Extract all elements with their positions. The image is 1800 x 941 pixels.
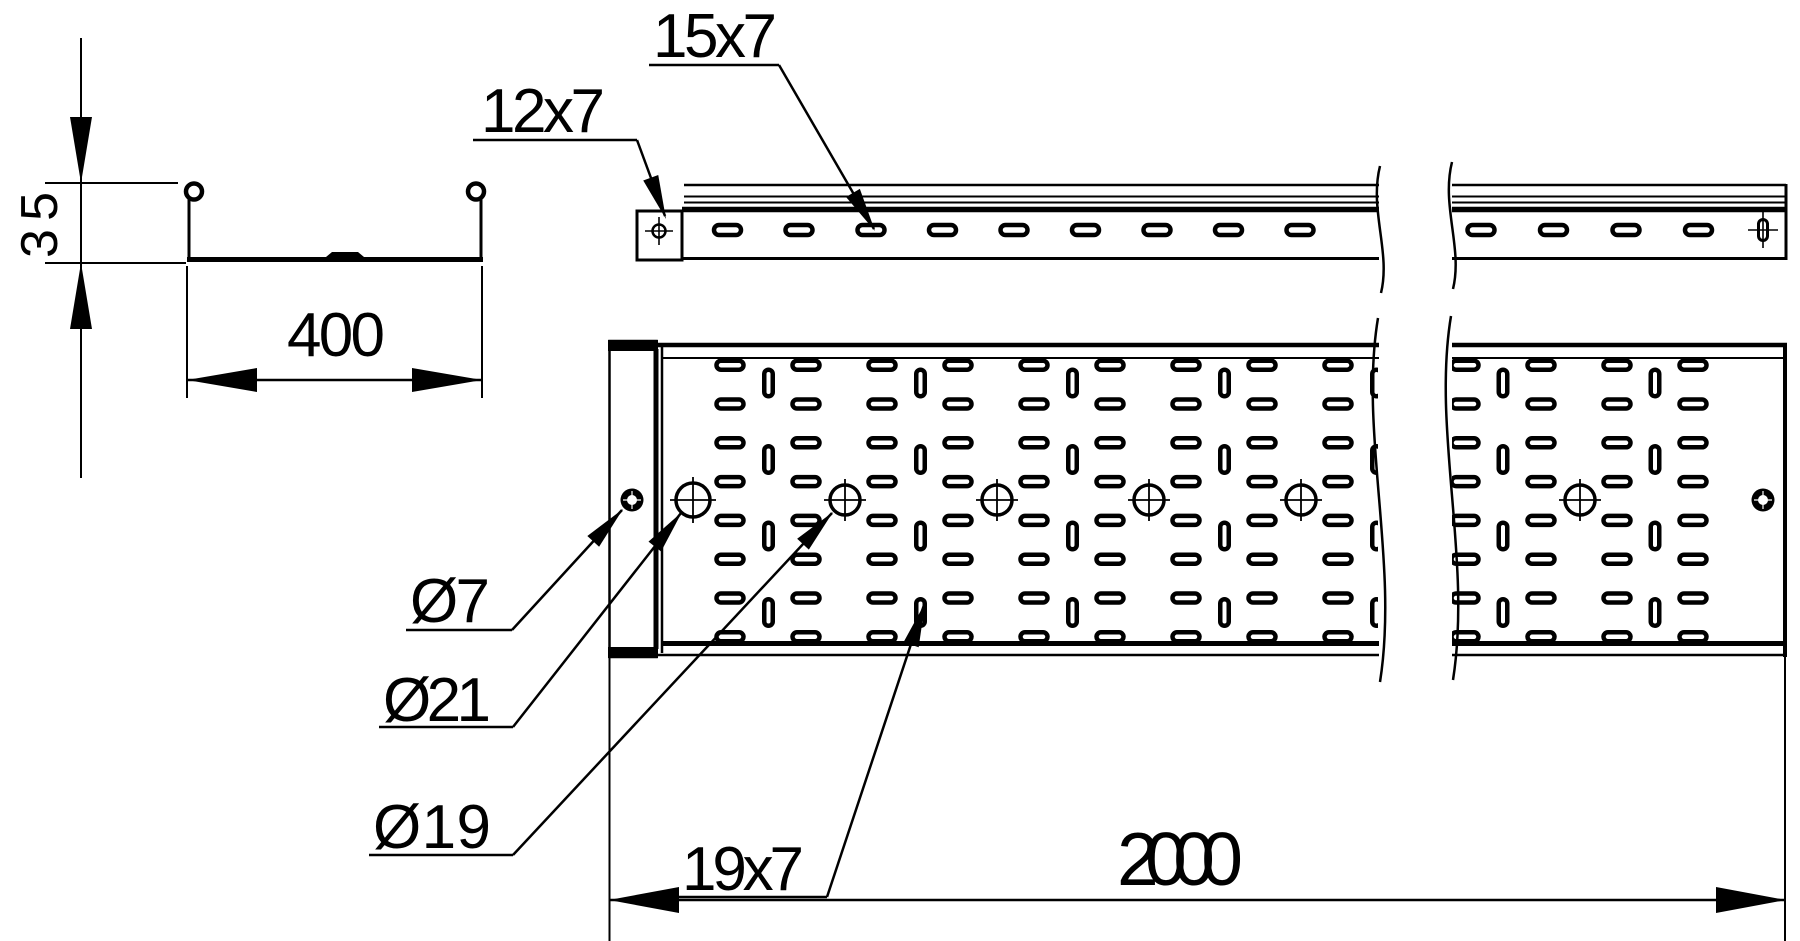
slot-hole: [1452, 361, 1479, 370]
slot-hole: [1680, 594, 1707, 603]
slot-hole: [1173, 361, 1200, 370]
slot-hole: [945, 400, 972, 409]
slot-hole: [1651, 446, 1660, 473]
slot-hole: [1372, 599, 1381, 626]
slot-hole: [869, 400, 896, 409]
slot-hole: [1499, 370, 1508, 397]
slot-hole: [1651, 523, 1660, 550]
arrowhead: [1716, 887, 1786, 913]
slot-hole: [786, 225, 813, 235]
slot-hole: [1097, 400, 1124, 409]
slot-hole: [1604, 361, 1631, 370]
slot-hole: [1680, 400, 1707, 409]
slot-hole: [1097, 594, 1124, 603]
slot-hole: [1468, 225, 1495, 235]
slot-hole: [1604, 555, 1631, 564]
slot-hole: [1680, 361, 1707, 370]
slot-hole: [1528, 632, 1555, 641]
slot-hole: [1097, 477, 1124, 486]
slot-hole: [793, 438, 820, 447]
slot-hole: [1173, 400, 1200, 409]
slot-hole: [1249, 477, 1276, 486]
slot-hole: [1372, 523, 1381, 550]
slot-hole: [1604, 477, 1631, 486]
slot-hole: [945, 594, 972, 603]
plate-top-cap: [608, 340, 658, 351]
slot-hole: [1097, 361, 1124, 370]
break-line: [1449, 162, 1456, 289]
dim-35-text: 35: [11, 192, 69, 258]
slot-hole: [1287, 225, 1314, 235]
slot-hole: [1325, 477, 1352, 486]
slot-hole: [1372, 370, 1381, 397]
callouts: 12x7 15x7 Ø7 Ø21 Ø19 19x7: [369, 2, 924, 904]
slot-hole: [1249, 400, 1276, 409]
slot-hole: [1604, 516, 1631, 525]
plate-bottom-cap: [608, 647, 658, 658]
arrowhead: [70, 263, 92, 329]
slot-hole: [1540, 225, 1567, 235]
slot-hole: [764, 599, 773, 626]
slot-hole: [869, 555, 896, 564]
slot-hole: [793, 361, 820, 370]
arrowhead: [187, 368, 257, 392]
slot-hole: [1452, 516, 1479, 525]
slot-hole: [1173, 555, 1200, 564]
slot-hole: [1651, 370, 1660, 397]
slot-hole: [1325, 516, 1352, 525]
slot-hole: [1173, 438, 1200, 447]
slot-hole: [916, 370, 925, 397]
slot-hole: [1499, 446, 1508, 473]
side-view: [637, 162, 1786, 293]
slot-hole: [1452, 632, 1479, 641]
slot-hole: [869, 438, 896, 447]
slot-hole: [764, 523, 773, 550]
slot-hole: [717, 594, 744, 603]
slot-hole: [1097, 516, 1124, 525]
slot-hole: [869, 477, 896, 486]
slot-hole: [1452, 438, 1479, 447]
slot-hole: [1325, 594, 1352, 603]
slot-hole: [1325, 361, 1352, 370]
label-19x7: 19x7: [682, 835, 804, 904]
slot-hole: [1604, 400, 1631, 409]
slot-hole: [1068, 446, 1077, 473]
slot-hole: [717, 516, 744, 525]
plan-view: [608, 316, 1787, 682]
slot-hole: [1173, 594, 1200, 603]
slot-hole: [1249, 594, 1276, 603]
slot-hole: [1021, 400, 1048, 409]
slot-hole: [1499, 599, 1508, 626]
slot-hole: [1068, 599, 1077, 626]
slot-hole: [1528, 400, 1555, 409]
slot-hole: [1528, 477, 1555, 486]
side-rail-slots: [714, 225, 1712, 235]
break-line: [1377, 166, 1384, 293]
slot-hole: [1680, 516, 1707, 525]
slot-hole: [1325, 632, 1352, 641]
slot-hole: [793, 555, 820, 564]
slot-hole: [1249, 438, 1276, 447]
slot-hole: [717, 361, 744, 370]
label-d21: Ø21: [383, 666, 491, 735]
slot-hole: [1325, 400, 1352, 409]
slot-hole: [1249, 516, 1276, 525]
slot-hole: [945, 632, 972, 641]
slot-hole: [1068, 370, 1077, 397]
slot-hole: [1021, 361, 1048, 370]
slot-hole: [1097, 438, 1124, 447]
slot-hole: [1604, 594, 1631, 603]
slot-hole: [945, 477, 972, 486]
right-hook-curl: [468, 184, 484, 200]
slot-hole: [1021, 632, 1048, 641]
slot-hole: [717, 400, 744, 409]
slot-hole: [858, 225, 885, 235]
slot-hole: [1068, 523, 1077, 550]
slot-hole: [1528, 594, 1555, 603]
slot-hole: [1173, 516, 1200, 525]
label-d7: Ø7: [410, 567, 490, 636]
slot-hole: [717, 555, 744, 564]
slot-hole: [714, 225, 741, 235]
slot-hole: [764, 446, 773, 473]
left-hook-curl: [186, 184, 202, 200]
slot-hole: [1220, 599, 1229, 626]
slot-hole: [1452, 400, 1479, 409]
arrowhead: [70, 117, 92, 183]
slot-hole: [1249, 632, 1276, 641]
slot-hole: [1680, 477, 1707, 486]
cable-tray-drawing: 35 400: [0, 0, 1800, 941]
slot-hole: [1249, 555, 1276, 564]
slot-hole: [1021, 477, 1048, 486]
slot-hole: [1528, 516, 1555, 525]
dim-400-text: 400: [287, 301, 385, 370]
label-15x7: 15x7: [653, 2, 777, 71]
slot-hole: [1144, 225, 1171, 235]
slot-hole: [1528, 555, 1555, 564]
slot-hole: [869, 594, 896, 603]
slot-hole: [869, 516, 896, 525]
slot-hole: [945, 516, 972, 525]
slot-hole: [793, 594, 820, 603]
slot-hole: [1220, 370, 1229, 397]
slot-hole: [1452, 477, 1479, 486]
slot-hole: [1220, 523, 1229, 550]
slot-hole: [1021, 594, 1048, 603]
leader-line: [513, 513, 832, 855]
cross-section-view: 35 400: [11, 38, 484, 478]
slot-hole: [929, 225, 956, 235]
slot-hole: [1021, 438, 1048, 447]
slot-hole: [1680, 632, 1707, 641]
slot-hole: [793, 632, 820, 641]
leader-line: [827, 605, 924, 897]
slot-hole: [1604, 438, 1631, 447]
slot-hole: [1173, 632, 1200, 641]
slot-hole: [1604, 632, 1631, 641]
arrowhead: [412, 368, 482, 392]
slot-hole: [1499, 523, 1508, 550]
slot-hole: [1173, 477, 1200, 486]
slot-hole: [1001, 225, 1028, 235]
slot-hole: [945, 555, 972, 564]
slot-hole: [764, 370, 773, 397]
slot-hole: [869, 632, 896, 641]
slot-hole: [1325, 555, 1352, 564]
perforation-right: [1452, 361, 1707, 642]
label-12x7: 12x7: [481, 77, 605, 146]
perforation-left: [717, 361, 1381, 642]
label-d19: Ø19: [373, 793, 491, 862]
technical-drawing-page: 35 400: [0, 0, 1800, 941]
slot-hole: [1452, 594, 1479, 603]
slot-hole: [945, 438, 972, 447]
slot-hole: [1021, 555, 1048, 564]
slot-hole: [1021, 516, 1048, 525]
slot-hole: [1072, 225, 1099, 235]
slot-hole: [717, 438, 744, 447]
slot-hole: [1528, 361, 1555, 370]
arrowhead: [609, 887, 679, 913]
slot-hole: [1215, 225, 1242, 235]
slot-hole: [793, 400, 820, 409]
slot-hole: [1220, 446, 1229, 473]
slot-hole: [1249, 361, 1276, 370]
slot-hole: [1528, 438, 1555, 447]
slot-hole: [1680, 438, 1707, 447]
slot-hole: [1097, 632, 1124, 641]
floor-rib: [326, 252, 364, 257]
slot-hole: [1685, 225, 1712, 235]
slot-hole: [793, 477, 820, 486]
dim-2000-text: 2000: [1117, 817, 1243, 901]
slot-hole: [869, 361, 896, 370]
slot-hole: [1613, 225, 1640, 235]
slot-hole: [793, 516, 820, 525]
slot-hole: [1651, 599, 1660, 626]
slot-hole: [717, 477, 744, 486]
slot-hole: [1325, 438, 1352, 447]
slot-hole: [1097, 555, 1124, 564]
slot-hole: [916, 446, 925, 473]
slot-hole: [916, 523, 925, 550]
slot-hole: [1680, 555, 1707, 564]
slot-hole: [945, 361, 972, 370]
